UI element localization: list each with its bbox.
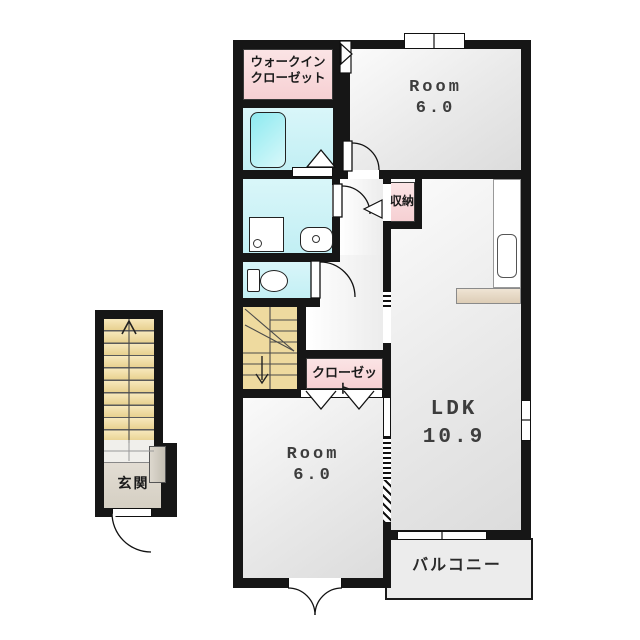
folding-door-icon (307, 150, 335, 167)
door-leaf (311, 261, 320, 298)
door-leaf (333, 184, 342, 217)
door-swing-arc (352, 143, 379, 170)
door-leaf (343, 141, 352, 171)
balcony-label: バルコニー (391, 556, 523, 576)
door-swing-arc (315, 588, 342, 615)
walk-in-closet-label: ウォークイン クローゼット (243, 55, 333, 86)
storage-door-arrow-icon (364, 200, 382, 218)
door-swing-arc (288, 588, 315, 615)
closet-label: クローゼット (306, 365, 383, 398)
stair-treads (243, 307, 297, 389)
storage-label: 収納 (384, 194, 420, 209)
entrance-label: 玄関 (104, 475, 163, 493)
plan-symbols (0, 0, 640, 640)
bedroom-bottom-label: Room 6.0 (243, 444, 383, 487)
floor-plan: ウォークイン クローゼット Room 6.0 収納 クローゼット Room 6.… (0, 0, 640, 640)
bedroom-top-label: Room 6.0 (350, 77, 521, 120)
entrance-door-arc (112, 513, 151, 552)
ldk-label: LDK 10.9 (391, 396, 517, 453)
door-swing-arc (320, 262, 355, 297)
